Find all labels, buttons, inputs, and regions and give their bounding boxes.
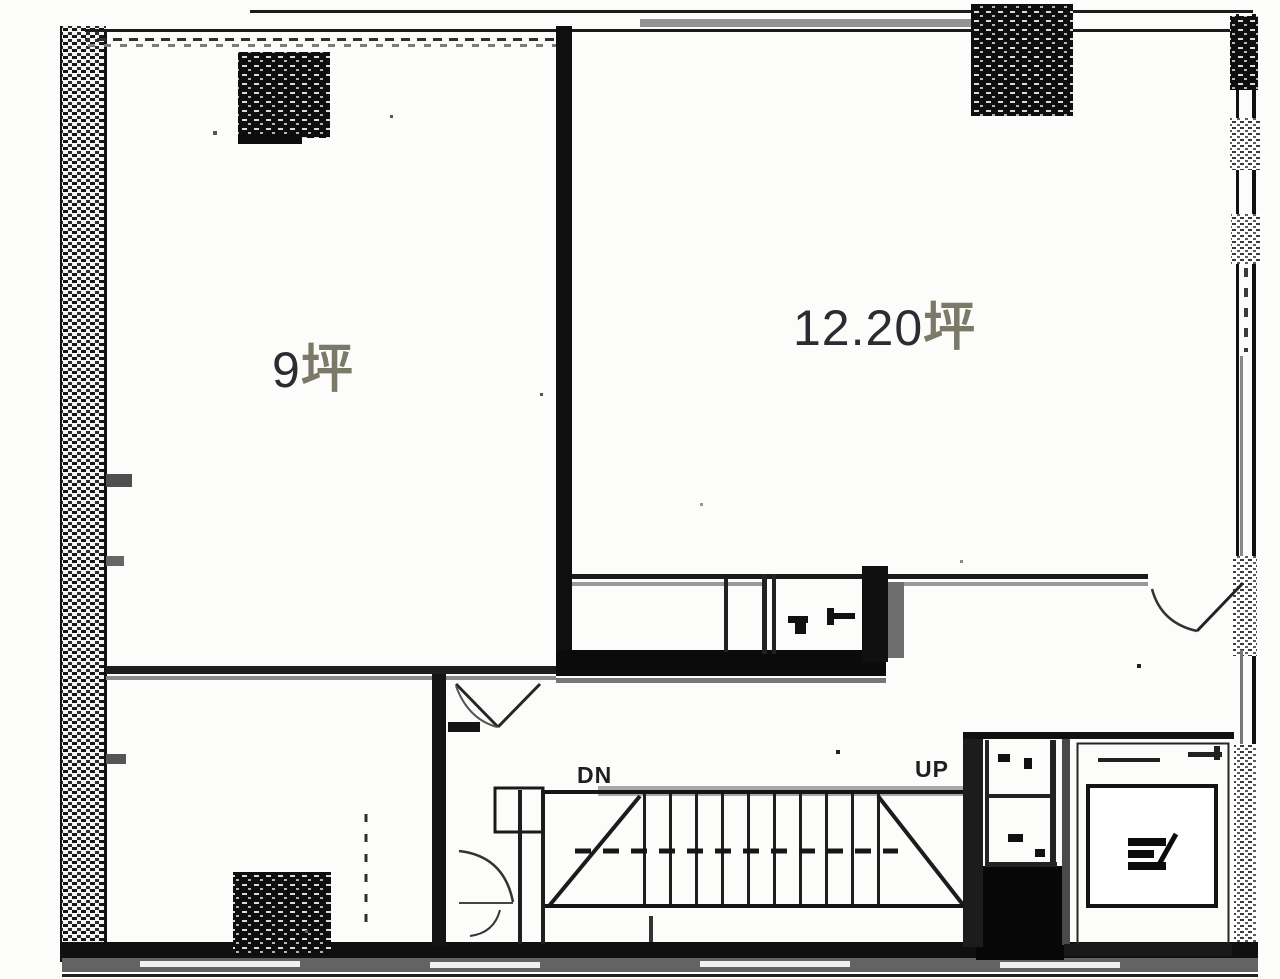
service-room	[985, 740, 1057, 867]
toilet-room	[724, 566, 904, 662]
column-block-bottom-left	[233, 872, 331, 956]
staircase	[495, 739, 983, 947]
inner-wall-hall-top	[572, 574, 1148, 586]
outer-wall-left	[60, 26, 132, 962]
room-divider-wall	[556, 26, 572, 676]
outer-wall-right	[1230, 14, 1261, 948]
stair-up-label: UP	[915, 758, 949, 781]
service-fixtures	[998, 754, 1045, 857]
room-area-value: 12.20	[793, 300, 923, 356]
wall-stub	[106, 474, 132, 487]
door-hall-right	[1152, 583, 1243, 631]
floor-plan: 9坪 12.20坪 DN UP	[0, 0, 1280, 979]
room-area-label-left: 9坪	[272, 344, 353, 396]
floor-plan-drawing	[0, 0, 1280, 979]
stair-diagonal-left	[549, 796, 640, 906]
scan-noise	[213, 115, 1141, 933]
stair-right-wall	[963, 739, 983, 947]
outer-wall-top	[85, 10, 1253, 47]
room-area-value: 9	[272, 342, 301, 398]
room-area-label-right: 12.20坪	[793, 302, 975, 354]
wall-stub	[106, 556, 124, 566]
toilet-fixtures	[788, 608, 855, 634]
stair-down-label: DN	[577, 764, 612, 787]
door-corridor-top	[448, 684, 540, 732]
room-area-unit: 坪	[923, 299, 975, 357]
room-area-unit: 坪	[301, 341, 353, 399]
column-block-top-center	[971, 4, 1073, 116]
elevator-top-marks	[1098, 746, 1222, 762]
inner-wall-center-black	[556, 650, 886, 683]
stair-treads	[643, 794, 880, 908]
door-corridor-lower	[459, 851, 513, 936]
column-block-bottom-right	[976, 866, 1064, 960]
column-block-top-left	[238, 52, 330, 144]
wall-stub	[106, 754, 126, 764]
